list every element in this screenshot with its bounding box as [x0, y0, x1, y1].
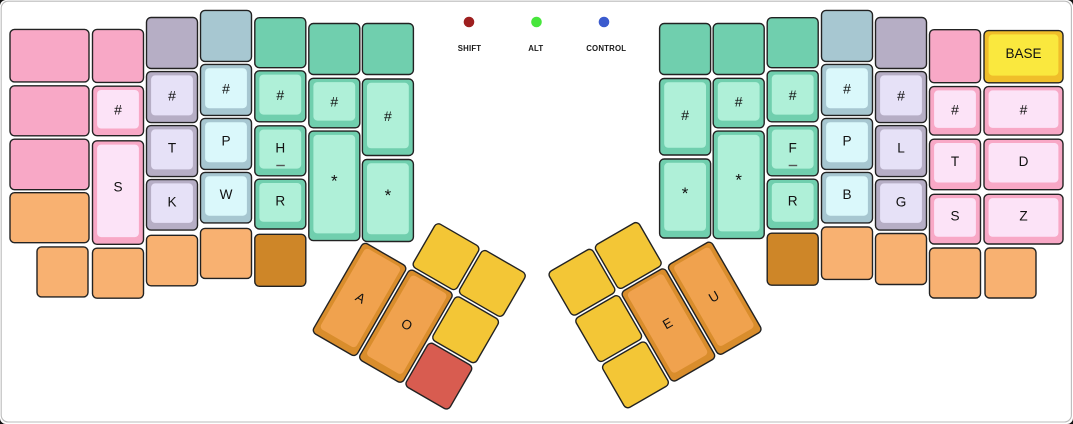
svg-text:#: #	[114, 102, 122, 118]
svg-text:S: S	[950, 209, 959, 224]
svg-text:#: #	[789, 87, 797, 103]
svg-text:B: B	[842, 187, 851, 202]
svg-text:BASE: BASE	[1005, 46, 1041, 61]
svg-text:#: #	[1020, 101, 1028, 117]
svg-text:W: W	[220, 187, 233, 202]
svg-text:*: *	[735, 170, 742, 189]
svg-text:ALT: ALT	[528, 44, 543, 53]
svg-text:S: S	[113, 180, 122, 195]
svg-text:Z: Z	[1019, 209, 1027, 224]
svg-text:#: #	[384, 108, 392, 124]
svg-text:*: *	[331, 171, 338, 190]
svg-text:#: #	[897, 88, 905, 104]
svg-text:H: H	[275, 140, 285, 155]
svg-text:P: P	[221, 133, 230, 148]
svg-text:#: #	[951, 101, 959, 117]
svg-text:L: L	[897, 141, 905, 156]
svg-text:SHIFT: SHIFT	[458, 44, 482, 53]
svg-text:T: T	[168, 141, 176, 156]
svg-text:T: T	[951, 154, 959, 169]
svg-text:R: R	[275, 194, 285, 209]
svg-text:P: P	[842, 133, 851, 148]
svg-text:#: #	[843, 80, 851, 96]
svg-text:#: #	[222, 80, 230, 96]
svg-text:F: F	[789, 140, 797, 155]
svg-text:#: #	[735, 94, 743, 110]
svg-text:G: G	[896, 194, 907, 209]
svg-text:#: #	[276, 87, 284, 103]
svg-text:*: *	[385, 186, 392, 205]
svg-text:#: #	[681, 107, 689, 123]
svg-text:CONTROL: CONTROL	[586, 44, 626, 53]
svg-text:D: D	[1019, 154, 1029, 169]
svg-text:#: #	[330, 94, 338, 110]
svg-text:*: *	[682, 184, 689, 203]
svg-text:R: R	[788, 194, 798, 209]
svg-text:K: K	[167, 194, 176, 209]
svg-text:#: #	[168, 88, 176, 104]
